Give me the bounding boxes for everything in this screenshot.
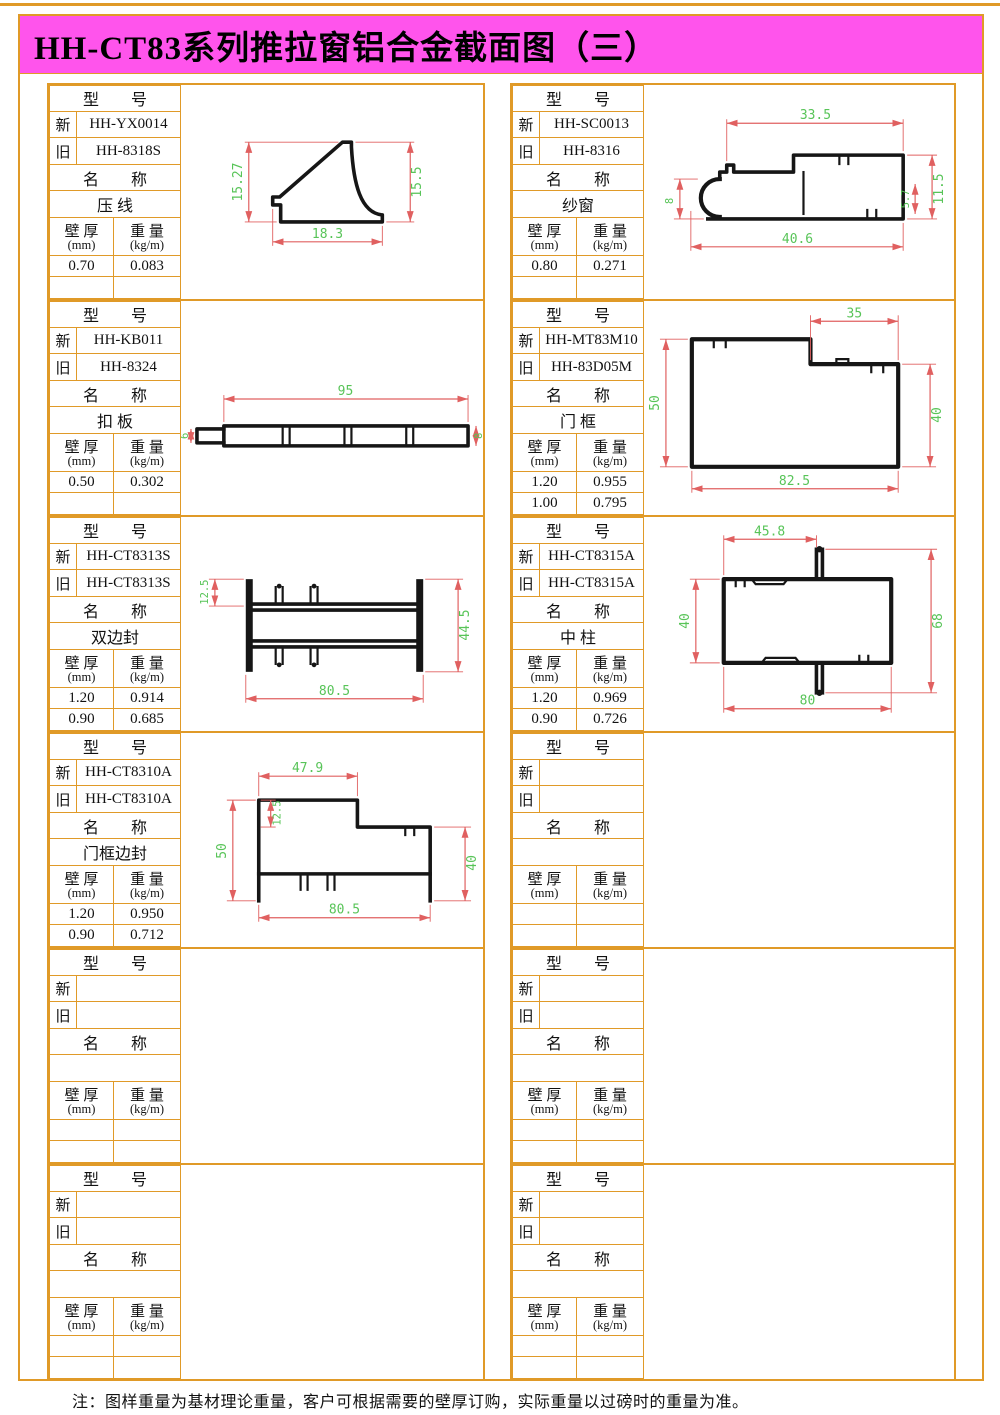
spec-table: 型 号 新HH-YX0014 旧HH-8318S 名 称 压 线 壁 厚(mm)…: [49, 85, 181, 299]
model-header: 型 号: [513, 302, 644, 328]
weight-header: 重 量(kg/m): [577, 217, 644, 255]
dim-top: 35: [847, 306, 863, 321]
dim-right: 44.5: [458, 609, 473, 640]
old-model: HH-83D05M: [540, 354, 644, 381]
spec-table: 型 号 新 旧 名 称 壁 厚(mm) 重 量(kg/m): [49, 949, 181, 1163]
thickness-value: 0.50: [50, 471, 114, 493]
old-label: 旧: [513, 786, 540, 813]
dim-left: 15.27: [231, 163, 246, 202]
new-label: 新: [50, 111, 77, 138]
thickness-value: [50, 1357, 114, 1379]
spec-table: 型 号 新HH-SC0013 旧HH-8316 名 称 纱窗 壁 厚(mm) 重…: [512, 85, 644, 299]
thickness-value: [50, 1119, 114, 1141]
profile-name: 纱窗: [513, 190, 644, 217]
model-header: 型 号: [50, 1166, 181, 1192]
weight-value: [577, 903, 644, 925]
thickness-value: [50, 1335, 114, 1357]
profile-name: 扣 板: [50, 406, 181, 433]
spec-table: 型 号 新 旧 名 称 壁 厚(mm) 重 量(kg/m): [512, 949, 644, 1163]
name-header: 名 称: [50, 597, 181, 623]
spec-table: 型 号 新 旧 名 称 壁 厚(mm) 重 量(kg/m): [49, 1165, 181, 1379]
dim-right: 68: [931, 613, 946, 629]
weight-value: [577, 1119, 644, 1141]
profile-name: 门 框: [513, 406, 644, 433]
weight-value: [577, 1141, 644, 1163]
profile-name: 门框边封: [50, 838, 181, 865]
old-model: [77, 1218, 181, 1245]
dim-bottom: 80.5: [319, 684, 350, 699]
model-header: 型 号: [513, 518, 644, 544]
profile-drawing: 35 50 40 82.5: [644, 301, 954, 515]
dim-top: 95: [338, 384, 354, 399]
model-header: 型 号: [513, 950, 644, 976]
old-label: 旧: [50, 1218, 77, 1245]
old-label: 旧: [513, 1002, 540, 1029]
profile-cell-empty: 型 号 新 旧 名 称 壁 厚(mm) 重 量(kg/m): [47, 1163, 485, 1381]
drawing-area: 35 50 40 82.5: [644, 301, 954, 515]
name-header: 名 称: [50, 1029, 181, 1055]
weight-value: 0.795: [577, 493, 644, 515]
profile-cell-kouban: 型 号 新HH-KB011 旧HH-8324 名 称 扣 板 壁 厚(mm) 重…: [47, 299, 485, 517]
name-header: 名 称: [50, 813, 181, 839]
new-model: HH-CT8313S: [77, 543, 181, 570]
old-model: [540, 1002, 644, 1029]
profile-cell-shuangbianfeng: 型 号 新HH-CT8313S 旧HH-CT8313S 名 称 双边封 壁 厚(…: [47, 515, 485, 733]
profile-cell-yaxian: 型 号 新HH-YX0014 旧HH-8318S 名 称 压 线 壁 厚(mm)…: [47, 83, 485, 301]
dim-top: 45.8: [754, 524, 785, 539]
thickness-value: 0.80: [513, 255, 577, 277]
new-label: 新: [513, 759, 540, 786]
weight-value: [114, 277, 181, 299]
old-model: HH-CT8313S: [77, 570, 181, 597]
weight-value: 0.969: [577, 687, 644, 709]
new-label: 新: [513, 327, 540, 354]
dim-bottom: 80: [800, 694, 816, 709]
profile-cell-menkuangbianfeng: 型 号 新HH-CT8310A 旧HH-CT8310A 名 称 门框边封 壁 厚…: [47, 731, 485, 949]
weight-value: 0.302: [114, 471, 181, 493]
profile-cell-empty: 型 号 新 旧 名 称 壁 厚(mm) 重 量(kg/m): [47, 947, 485, 1165]
spec-table: 型 号 新HH-MT83M10 旧HH-83D05M 名 称 门 框 壁 厚(m…: [512, 301, 644, 515]
thickness-value: 1.20: [50, 687, 114, 709]
profile-cell-menkuang: 型 号 新HH-MT83M10 旧HH-83D05M 名 称 门 框 壁 厚(m…: [510, 299, 956, 517]
old-model: [77, 1002, 181, 1029]
weight-header: 重 量(kg/m): [114, 433, 181, 471]
old-model: [540, 1218, 644, 1245]
new-label: 新: [513, 975, 540, 1002]
drawing-area: [181, 949, 483, 1163]
spec-table: 型 号 新HH-KB011 旧HH-8324 名 称 扣 板 壁 厚(mm) 重…: [49, 301, 181, 515]
model-header: 型 号: [513, 86, 644, 112]
old-model: HH-8324: [77, 354, 181, 381]
dim-right: 40: [465, 855, 480, 871]
drawing-area: 15.27 15.5 18.3: [181, 85, 483, 299]
dim-right: 40: [930, 407, 945, 423]
drawing-area: 45.8 40 68 80: [644, 517, 954, 731]
thickness-value: [513, 1335, 577, 1357]
new-label: 新: [50, 543, 77, 570]
drawing-area: [644, 733, 954, 947]
name-header: 名 称: [513, 813, 644, 839]
name-header: 名 称: [513, 165, 644, 191]
dim-bottom: 18.3: [312, 227, 343, 242]
old-label: 旧: [50, 1002, 77, 1029]
thickness-value: [50, 277, 114, 299]
thickness-value: 1.20: [513, 687, 577, 709]
old-model: HH-8318S: [77, 138, 181, 165]
drawing-area: 95 6 8: [181, 301, 483, 515]
drawing-area: [644, 949, 954, 1163]
new-model: HH-SC0013: [540, 111, 644, 138]
new-model: HH-MT83M10: [540, 327, 644, 354]
thickness-value: [513, 1357, 577, 1379]
thickness-value: 1.00: [513, 493, 577, 515]
old-model: HH-CT8315A: [540, 570, 644, 597]
weight-value: [577, 925, 644, 947]
spec-table: 型 号 新HH-CT8313S 旧HH-CT8313S 名 称 双边封 壁 厚(…: [49, 517, 181, 731]
new-model: [540, 759, 644, 786]
thickness-header: 壁 厚(mm): [513, 1081, 577, 1119]
weight-value: 0.271: [577, 255, 644, 277]
profile-drawing: 47.9 50 12.5 40: [181, 733, 483, 947]
thickness-value: [513, 1141, 577, 1163]
thickness-value: 0.90: [50, 925, 114, 947]
old-label: 旧: [50, 570, 77, 597]
profile-name: [513, 1270, 644, 1297]
drawing-sheet: HH-CT83系列推拉窗铝合金截面图（三） 型 号 新HH-YX0014 旧HH…: [18, 14, 984, 1381]
name-header: 名 称: [50, 381, 181, 407]
old-label: 旧: [50, 786, 77, 813]
spec-table: 型 号 新 旧 名 称 壁 厚(mm) 重 量(kg/m): [512, 733, 644, 947]
name-header: 名 称: [513, 597, 644, 623]
profile-drawing: 12.5 44.5 80.5: [181, 517, 483, 731]
dim-bottom: 80.5: [329, 903, 360, 918]
model-header: 型 号: [50, 86, 181, 112]
weight-value: 0.914: [114, 687, 181, 709]
weight-header: 重 量(kg/m): [114, 1297, 181, 1335]
model-header: 型 号: [513, 1166, 644, 1192]
title-bar: HH-CT83系列推拉窗铝合金截面图（三）: [20, 16, 982, 74]
weight-header: 重 量(kg/m): [577, 1081, 644, 1119]
profile-drawing: 95 6 8: [181, 301, 483, 515]
dim-left: 40: [678, 613, 693, 629]
profile-cell-empty: 型 号 新 旧 名 称 壁 厚(mm) 重 量(kg/m): [510, 947, 956, 1165]
footnote: 注：图样重量为基材理论重量，客户可根据需要的壁厚订购，实际重量以过磅时的重量为准…: [72, 1388, 749, 1412]
spec-table: 型 号 新HH-CT8310A 旧HH-CT8310A 名 称 门框边封 壁 厚…: [49, 733, 181, 947]
left-column: 型 号 新HH-YX0014 旧HH-8318S 名 称 压 线 壁 厚(mm)…: [47, 83, 485, 1381]
dim-left: 8: [664, 198, 676, 204]
weight-value: 0.726: [577, 709, 644, 731]
thickness-value: [513, 1119, 577, 1141]
top-rule: [0, 3, 1000, 6]
dim-inner: 5.7: [900, 190, 912, 209]
drawing-area: [181, 1165, 483, 1379]
weight-value: 0.685: [114, 709, 181, 731]
profile-name: 双边封: [50, 622, 181, 649]
profile-cell-empty: 型 号 新 旧 名 称 壁 厚(mm) 重 量(kg/m): [510, 731, 956, 949]
weight-value: 0.955: [577, 471, 644, 493]
weight-value: [114, 1119, 181, 1141]
drawing-area: 33.5 8 11.5 5.7: [644, 85, 954, 299]
new-label: 新: [50, 975, 77, 1002]
weight-header: 重 量(kg/m): [577, 865, 644, 903]
weight-value: 0.083: [114, 255, 181, 277]
thickness-header: 壁 厚(mm): [50, 1297, 114, 1335]
name-header: 名 称: [513, 1029, 644, 1055]
old-model: HH-CT8310A: [77, 786, 181, 813]
thickness-value: [513, 903, 577, 925]
thickness-value: 1.20: [513, 471, 577, 493]
new-label: 新: [50, 759, 77, 786]
new-label: 新: [513, 543, 540, 570]
old-label: 旧: [513, 138, 540, 165]
old-label: 旧: [513, 1218, 540, 1245]
thickness-header: 壁 厚(mm): [513, 433, 577, 471]
thickness-header: 壁 厚(mm): [50, 1081, 114, 1119]
profile-name: 压 线: [50, 190, 181, 217]
profile-name: [50, 1054, 181, 1081]
thickness-header: 壁 厚(mm): [50, 433, 114, 471]
old-label: 旧: [513, 354, 540, 381]
dim-right: 11.5: [932, 173, 947, 204]
new-model: HH-CT8315A: [540, 543, 644, 570]
name-header: 名 称: [50, 1245, 181, 1271]
dim-left: 6: [181, 433, 191, 439]
thickness-header: 壁 厚(mm): [513, 217, 577, 255]
model-header: 型 号: [50, 734, 181, 760]
new-model: [540, 1191, 644, 1218]
weight-value: 0.712: [114, 925, 181, 947]
new-model: [77, 1191, 181, 1218]
profile-drawing: 15.27 15.5 18.3: [181, 85, 483, 299]
new-model: [540, 975, 644, 1002]
page-title: HH-CT83系列推拉窗铝合金截面图（三）: [34, 21, 658, 69]
thickness-value: [513, 925, 577, 947]
weight-header: 重 量(kg/m): [114, 1081, 181, 1119]
weight-value: [114, 1141, 181, 1163]
dim-left: 50: [648, 395, 663, 411]
new-label: 新: [513, 111, 540, 138]
new-label: 新: [50, 327, 77, 354]
weight-value: [114, 493, 181, 515]
profile-name: [50, 1270, 181, 1297]
dim-top: 12.5: [199, 580, 211, 605]
dim-right: 8: [473, 433, 483, 439]
name-header: 名 称: [513, 381, 644, 407]
old-label: 旧: [50, 138, 77, 165]
new-model: HH-CT8310A: [77, 759, 181, 786]
profile-name: 中 柱: [513, 622, 644, 649]
profile-cell-empty: 型 号 新 旧 名 称 壁 厚(mm) 重 量(kg/m): [510, 1163, 956, 1381]
weight-value: [577, 1335, 644, 1357]
sheet-content: 型 号 新HH-YX0014 旧HH-8318S 名 称 压 线 壁 厚(mm)…: [20, 74, 982, 1381]
weight-value: 0.950: [114, 903, 181, 925]
thickness-header: 壁 厚(mm): [50, 865, 114, 903]
thickness-value: [50, 493, 114, 515]
model-header: 型 号: [50, 518, 181, 544]
dim-left: 50: [215, 843, 230, 859]
drawing-area: 47.9 50 12.5 40: [181, 733, 483, 947]
old-model: [540, 786, 644, 813]
thickness-header: 壁 厚(mm): [513, 865, 577, 903]
weight-header: 重 量(kg/m): [577, 649, 644, 687]
old-model: HH-8316: [540, 138, 644, 165]
weight-value: [577, 277, 644, 299]
dim-inner: 12.5: [272, 800, 284, 825]
spec-table: 型 号 新HH-CT8315A 旧HH-CT8315A 名 称 中 柱 壁 厚(…: [512, 517, 644, 731]
weight-header: 重 量(kg/m): [114, 649, 181, 687]
dim-bottom: 82.5: [779, 474, 810, 489]
thickness-header: 壁 厚(mm): [513, 1297, 577, 1335]
weight-header: 重 量(kg/m): [114, 865, 181, 903]
dim-right: 15.5: [410, 166, 425, 197]
profile-name: [513, 838, 644, 865]
new-model: HH-YX0014: [77, 111, 181, 138]
new-model: [77, 975, 181, 1002]
profile-drawing: 45.8 40 68 80: [644, 517, 954, 731]
thickness-value: [513, 277, 577, 299]
thickness-value: 1.20: [50, 903, 114, 925]
new-label: 新: [513, 1191, 540, 1218]
thickness-value: [50, 1141, 114, 1163]
spec-table: 型 号 新 旧 名 称 壁 厚(mm) 重 量(kg/m): [512, 1165, 644, 1379]
weight-value: [577, 1357, 644, 1379]
new-label: 新: [50, 1191, 77, 1218]
weight-value: [114, 1335, 181, 1357]
dim-bottom: 40.6: [782, 232, 813, 247]
new-model: HH-KB011: [77, 327, 181, 354]
model-header: 型 号: [50, 950, 181, 976]
thickness-value: 0.90: [50, 709, 114, 731]
dim-top: 47.9: [292, 761, 323, 776]
drawing-area: 12.5 44.5 80.5: [181, 517, 483, 731]
thickness-value: 0.70: [50, 255, 114, 277]
weight-header: 重 量(kg/m): [577, 1297, 644, 1335]
drawing-area: [644, 1165, 954, 1379]
weight-header: 重 量(kg/m): [114, 217, 181, 255]
name-header: 名 称: [50, 165, 181, 191]
thickness-header: 壁 厚(mm): [50, 649, 114, 687]
thickness-value: 0.90: [513, 709, 577, 731]
old-label: 旧: [513, 570, 540, 597]
dim-top: 33.5: [800, 108, 831, 123]
thickness-header: 壁 厚(mm): [513, 649, 577, 687]
weight-header: 重 量(kg/m): [577, 433, 644, 471]
model-header: 型 号: [513, 734, 644, 760]
name-header: 名 称: [513, 1245, 644, 1271]
profile-drawing: 33.5 8 11.5 5.7: [644, 85, 954, 299]
profile-name: [513, 1054, 644, 1081]
old-label: 旧: [50, 354, 77, 381]
profile-cell-shachuang: 型 号 新HH-SC0013 旧HH-8316 名 称 纱窗 壁 厚(mm) 重…: [510, 83, 956, 301]
right-column: 型 号 新HH-SC0013 旧HH-8316 名 称 纱窗 壁 厚(mm) 重…: [510, 83, 956, 1381]
model-header: 型 号: [50, 302, 181, 328]
weight-value: [114, 1357, 181, 1379]
thickness-header: 壁 厚(mm): [50, 217, 114, 255]
profile-cell-zhongzhu: 型 号 新HH-CT8315A 旧HH-CT8315A 名 称 中 柱 壁 厚(…: [510, 515, 956, 733]
